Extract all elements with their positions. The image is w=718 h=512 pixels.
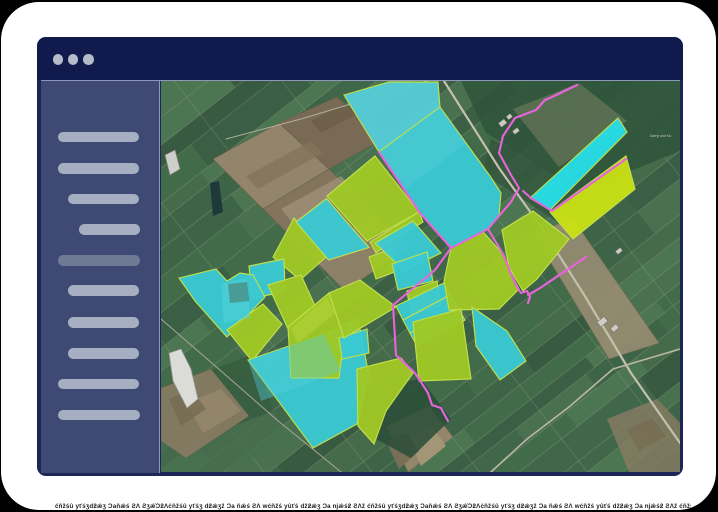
svg-text:Darryl and Ka: Darryl and Ka: [650, 134, 671, 138]
